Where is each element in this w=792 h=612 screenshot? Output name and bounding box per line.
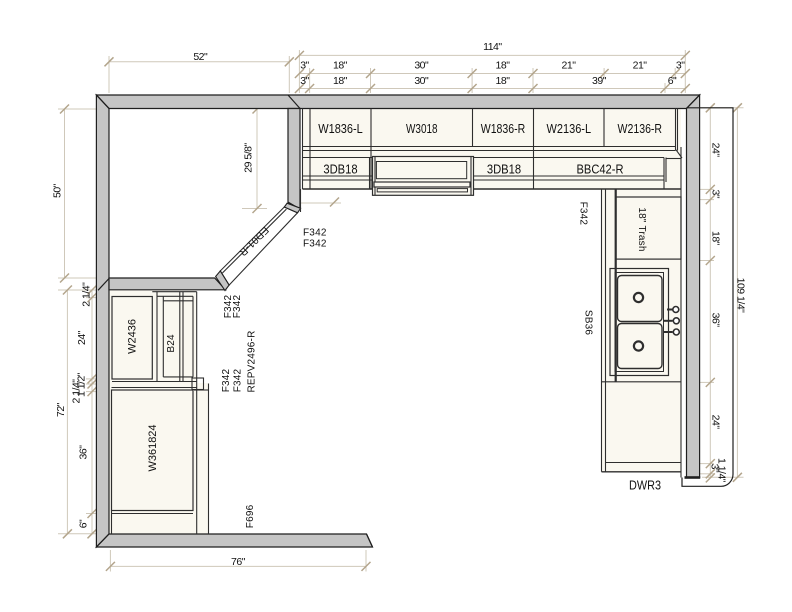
svg-text:30": 30" <box>414 59 429 71</box>
svg-text:F696: F696 <box>245 504 256 528</box>
svg-text:21": 21" <box>562 59 577 71</box>
svg-text:6": 6" <box>668 75 677 87</box>
svg-text:3": 3" <box>676 59 685 71</box>
svg-text:W361824: W361824 <box>147 424 159 471</box>
svg-text:109 1/4": 109 1/4" <box>735 278 747 314</box>
svg-text:18": 18" <box>496 75 511 87</box>
svg-text:W3018: W3018 <box>406 121 438 136</box>
svg-text:REPV2496-R: REPV2496-R <box>247 330 258 392</box>
svg-text:21": 21" <box>633 59 648 71</box>
svg-text:F342: F342 <box>303 227 327 238</box>
svg-text:3DB18: 3DB18 <box>487 161 521 176</box>
svg-text:W2136-R: W2136-R <box>618 121 663 136</box>
svg-text:72": 72" <box>55 402 67 417</box>
svg-text:F342: F342 <box>232 368 243 392</box>
svg-text:24": 24" <box>709 143 721 158</box>
svg-text:3": 3" <box>709 190 721 199</box>
svg-text:36": 36" <box>709 313 721 328</box>
svg-text:W2136-L: W2136-L <box>547 121 592 136</box>
svg-text:W1836-L: W1836-L <box>318 121 363 136</box>
svg-text:3": 3" <box>300 59 309 71</box>
svg-text:B24: B24 <box>166 334 177 353</box>
svg-text:F342: F342 <box>221 368 232 392</box>
svg-text:W1836-R: W1836-R <box>481 121 526 136</box>
svg-text:114": 114" <box>483 41 502 53</box>
svg-text:BBC42-R: BBC42-R <box>577 161 624 176</box>
svg-text:36": 36" <box>77 445 89 460</box>
svg-text:W2436: W2436 <box>126 319 138 354</box>
svg-text:18" Trash: 18" Trash <box>636 207 647 251</box>
svg-text:29 5/8": 29 5/8" <box>242 143 254 173</box>
svg-text:50": 50" <box>51 183 63 198</box>
svg-text:SB36: SB36 <box>582 310 593 336</box>
svg-text:1 1/4": 1 1/4" <box>715 458 727 483</box>
svg-text:18": 18" <box>333 59 348 71</box>
svg-text:24": 24" <box>76 330 88 345</box>
svg-text:6": 6" <box>77 519 89 528</box>
svg-text:18": 18" <box>496 59 511 71</box>
svg-text:39": 39" <box>592 75 607 87</box>
svg-text:F342: F342 <box>578 202 589 226</box>
svg-text:18": 18" <box>333 75 348 87</box>
svg-text:F342: F342 <box>232 294 243 318</box>
svg-text:30": 30" <box>414 75 429 87</box>
svg-text:2 1/4": 2 1/4" <box>80 282 92 307</box>
svg-text:52": 52" <box>193 51 208 63</box>
svg-text:18": 18" <box>709 231 721 246</box>
svg-text:F342: F342 <box>303 238 327 249</box>
svg-text:DWR3: DWR3 <box>629 478 661 493</box>
svg-text:24": 24" <box>709 415 721 430</box>
svg-text:3": 3" <box>300 75 309 87</box>
svg-text:2 1/4": 2 1/4" <box>70 379 82 404</box>
svg-text:3DB18: 3DB18 <box>323 161 357 176</box>
svg-text:76": 76" <box>231 556 246 568</box>
